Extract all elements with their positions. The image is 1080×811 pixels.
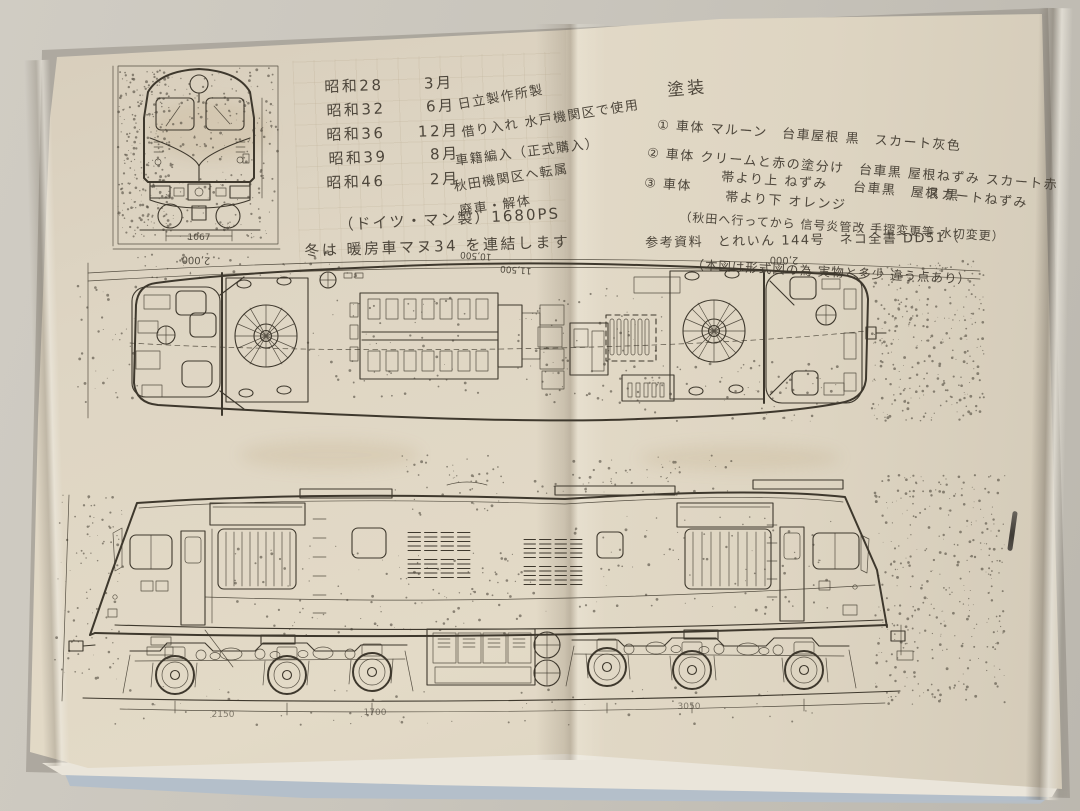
window-mid-right — [597, 532, 623, 558]
plan-dim-top-inner: 10,500 — [460, 249, 492, 261]
grille-left — [218, 529, 296, 589]
body-seam-line — [205, 585, 875, 600]
era-label: 昭和36 — [326, 124, 386, 144]
side-dim-2: 1700 — [364, 708, 387, 718]
side-dim-1: 2150 — [212, 710, 235, 720]
era-label: 昭和28 — [324, 76, 384, 96]
front-view-drawing: 1067 — [110, 58, 292, 256]
side-dim-3: 3050 — [678, 702, 701, 712]
fuel-tank — [427, 629, 535, 685]
louver-group-a — [408, 533, 470, 578]
cab-right-side — [767, 525, 869, 621]
ladder-rungs — [313, 519, 326, 613]
windshield-windows — [156, 98, 244, 130]
photo-of-open-booklet: 昭和28 3月 昭和32 6月 昭和36 12月 昭和39 8月 昭和46 2月… — [0, 0, 1080, 811]
louver-group-b — [524, 540, 582, 585]
table-row: 昭和28 3月 — [324, 71, 454, 96]
paint-item-3-head: ③ 車体 — [644, 172, 693, 194]
generator-plan — [498, 305, 522, 367]
era-label: 昭和32 — [326, 99, 386, 120]
era-label: 昭和46 — [326, 172, 386, 192]
grille-right — [685, 529, 771, 589]
radiator-fan-left — [226, 277, 308, 402]
side-view-drawing: 2150 1700 3050 — [55, 455, 1015, 755]
bogie-mirrored — [566, 630, 856, 689]
gauge-dim-label: 1067 — [188, 233, 211, 243]
month-label: 6月 — [426, 96, 456, 115]
buffer-beam — [150, 184, 250, 200]
dimension-ticks — [120, 699, 885, 715]
paint-title: 塗装 — [666, 73, 708, 101]
radiator-fan-right — [670, 270, 764, 399]
frame-line — [115, 620, 883, 629]
plan-dim-left: 2,000 — [181, 254, 210, 266]
engine-block-plan — [350, 293, 540, 379]
shutter-box-right — [677, 503, 773, 527]
shutter-box-left — [210, 503, 305, 525]
nose-crease — [150, 138, 250, 182]
plan-view-drawing: 2,000 10,500 11,500 2,000 — [78, 243, 990, 445]
plan-dim-right: 2,000 — [770, 254, 799, 265]
top-dimension-line — [88, 259, 980, 273]
rail-line — [83, 691, 900, 701]
month-label: 3月 — [424, 73, 454, 92]
left-dimension-line — [62, 495, 69, 701]
air-reservoirs — [534, 632, 560, 686]
era-label: 昭和39 — [328, 147, 388, 168]
plan-dim-top-outer: 11,500 — [500, 263, 532, 275]
bogie — [123, 635, 413, 694]
month-label: 12月 — [418, 121, 460, 140]
